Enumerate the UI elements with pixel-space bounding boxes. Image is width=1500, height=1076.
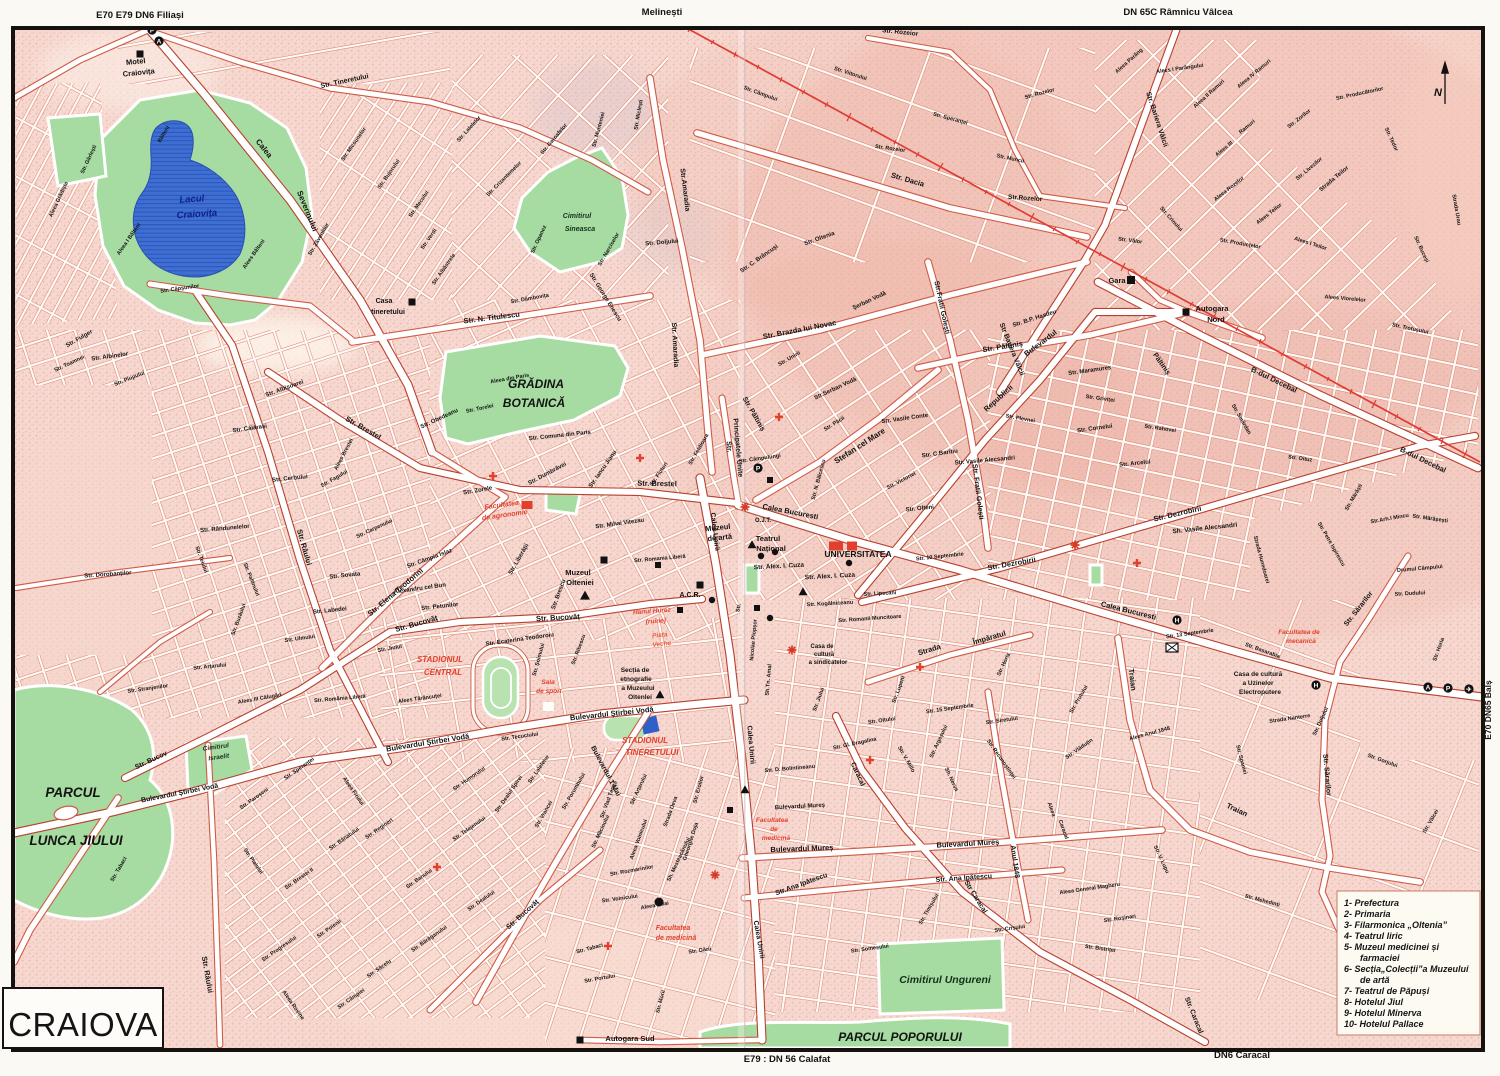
svg-text:P: P xyxy=(1446,686,1451,693)
svg-text:E70 DN65 Balș: E70 DN65 Balș xyxy=(1483,680,1493,740)
svg-text:tineretului: tineretului xyxy=(371,309,405,316)
svg-text:TINERETULUI: TINERETULUI xyxy=(626,748,680,757)
svg-text:A.C.R.: A.C.R. xyxy=(680,592,701,599)
svg-text:Gara: Gara xyxy=(1108,276,1126,285)
svg-text:Sineasca: Sineasca xyxy=(565,226,595,233)
svg-text:Facultatea de: Facultatea de xyxy=(1278,629,1320,636)
svg-text:Electroputere: Electroputere xyxy=(1239,689,1281,696)
svg-text:Facultatea: Facultatea xyxy=(656,925,691,932)
svg-text:DN6 Caracal: DN6 Caracal xyxy=(1214,1050,1270,1061)
svg-text:CRAIOVA: CRAIOVA xyxy=(8,1006,158,1043)
svg-text:PARCUL POPORULUI: PARCUL POPORULUI xyxy=(838,1030,962,1044)
svg-text:N: N xyxy=(1434,87,1443,99)
svg-text:PARCUL: PARCUL xyxy=(45,785,100,800)
svg-text:H: H xyxy=(1314,683,1319,690)
svg-text:Casa: Casa xyxy=(376,298,393,305)
svg-text:UNIVERSITATEA: UNIVERSITATEA xyxy=(824,549,891,559)
svg-text:Cimitirul: Cimitirul xyxy=(563,213,592,220)
svg-text:STADIONUL: STADIONUL xyxy=(417,655,463,664)
svg-text:5- Muzeul medicinei și: 5- Muzeul medicinei și xyxy=(1344,942,1440,952)
svg-text:Str.: Str. xyxy=(725,441,733,453)
svg-text:Național: Național xyxy=(756,544,786,553)
svg-text:2- Primaria: 2- Primaria xyxy=(1343,909,1391,919)
svg-text:mecanică: mecanică xyxy=(1286,638,1316,645)
svg-text:Muzeul: Muzeul xyxy=(565,568,590,577)
svg-text:BOTANICĂ: BOTANICĂ xyxy=(503,395,565,410)
svg-text:(ruine): (ruine) xyxy=(646,617,667,625)
svg-text:A: A xyxy=(157,39,162,46)
svg-text:a sindicatelor: a sindicatelor xyxy=(809,660,848,666)
svg-text:8- Hotelul Jiul: 8- Hotelul Jiul xyxy=(1344,997,1404,1007)
svg-text:Olteniei: Olteniei xyxy=(566,578,594,587)
svg-text:Autogara Sud: Autogara Sud xyxy=(605,1034,655,1043)
svg-text:✈: ✈ xyxy=(1466,686,1472,694)
svg-text:medicină: medicină xyxy=(762,835,791,842)
svg-text:3- Filarmonica „Oltenia”: 3- Filarmonica „Oltenia” xyxy=(1344,920,1448,930)
svg-text:Casa de: Casa de xyxy=(810,644,834,650)
svg-text:A: A xyxy=(1426,685,1431,692)
svg-text:DN 65C Râmnicu Vâlcea: DN 65C Râmnicu Vâlcea xyxy=(1123,7,1233,18)
svg-text:Secția de: Secția de xyxy=(621,667,650,674)
svg-text:a Muzeului: a Muzeului xyxy=(621,685,654,692)
svg-text:6- Secția„Colecții”a Muzeului: 6- Secția„Colecții”a Muzeului xyxy=(1344,964,1469,974)
svg-text:de: de xyxy=(770,826,778,833)
svg-text:O.J.T.: O.J.T. xyxy=(755,518,771,524)
svg-text:H: H xyxy=(1175,618,1180,625)
svg-text:4- Teatrul liric: 4- Teatrul liric xyxy=(1343,931,1403,941)
svg-text:STADIONUL: STADIONUL xyxy=(622,736,668,745)
svg-text:a Uzinelor: a Uzinelor xyxy=(1242,680,1274,687)
svg-text:E70 E79 DN6 Filiași: E70 E79 DN6 Filiași xyxy=(96,10,184,21)
svg-text:LUNCA JIULUI: LUNCA JIULUI xyxy=(29,833,122,848)
svg-text:Autogara: Autogara xyxy=(1196,304,1230,313)
svg-text:Lacul: Lacul xyxy=(179,193,205,206)
svg-text:CENTRAL: CENTRAL xyxy=(424,668,462,677)
svg-text:Sala: Sala xyxy=(541,679,555,686)
svg-text:10- Hotelul Pallace: 10- Hotelul Pallace xyxy=(1344,1019,1424,1029)
svg-text:de sport: de sport xyxy=(536,688,562,695)
svg-text:P: P xyxy=(756,466,761,473)
svg-text:de medicină: de medicină xyxy=(656,935,697,942)
svg-text:E79 : DN 56 Calafat: E79 : DN 56 Calafat xyxy=(744,1054,831,1065)
svg-text:Oltenlei: Oltenlei xyxy=(628,694,652,701)
svg-text:etnografie: etnografie xyxy=(620,676,652,683)
svg-text:farmaciei: farmaciei xyxy=(1360,953,1400,963)
svg-text:7- Teatrul de Păpuși: 7- Teatrul de Păpuși xyxy=(1344,986,1430,996)
svg-text:Cimitirul Ungureni: Cimitirul Ungureni xyxy=(899,974,992,986)
svg-text:Nord: Nord xyxy=(1207,315,1225,324)
svg-text:9- Hotelul Minerva: 9- Hotelul Minerva xyxy=(1344,1008,1422,1018)
svg-text:Casa de cultură: Casa de cultură xyxy=(1234,671,1283,678)
svg-text:Teatrul: Teatrul xyxy=(756,534,780,543)
svg-text:Melinești: Melinești xyxy=(642,7,683,18)
svg-text:cultură: cultură xyxy=(814,652,835,658)
svg-text:1- Prefectura: 1- Prefectura xyxy=(1344,898,1399,908)
svg-text:Facultatea: Facultatea xyxy=(756,817,789,824)
svg-text:de artă: de artă xyxy=(1360,975,1390,985)
